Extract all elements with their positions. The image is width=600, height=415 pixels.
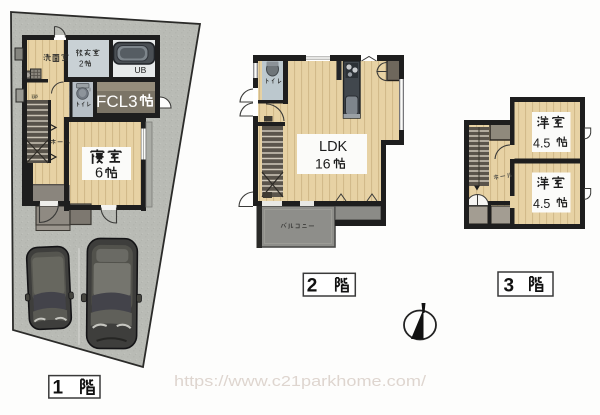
svg-text:16: 16 [315,156,331,172]
svg-text:6: 6 [95,166,103,182]
svg-text:https://www.c21parkhome.com/: https://www.c21parkhome.com/ [174,374,427,390]
svg-text:1: 1 [53,378,64,399]
svg-text:4.5: 4.5 [533,137,550,151]
svg-text:2: 2 [307,276,318,297]
svg-text:3: 3 [504,276,515,297]
svg-text:UP: UP [32,94,38,99]
svg-text:4.5: 4.5 [533,197,550,211]
svg-text:UB: UB [135,65,147,75]
svg-text:2: 2 [79,60,84,69]
svg-text:FCL3: FCL3 [96,92,138,111]
svg-text:LDK: LDK [319,139,348,155]
